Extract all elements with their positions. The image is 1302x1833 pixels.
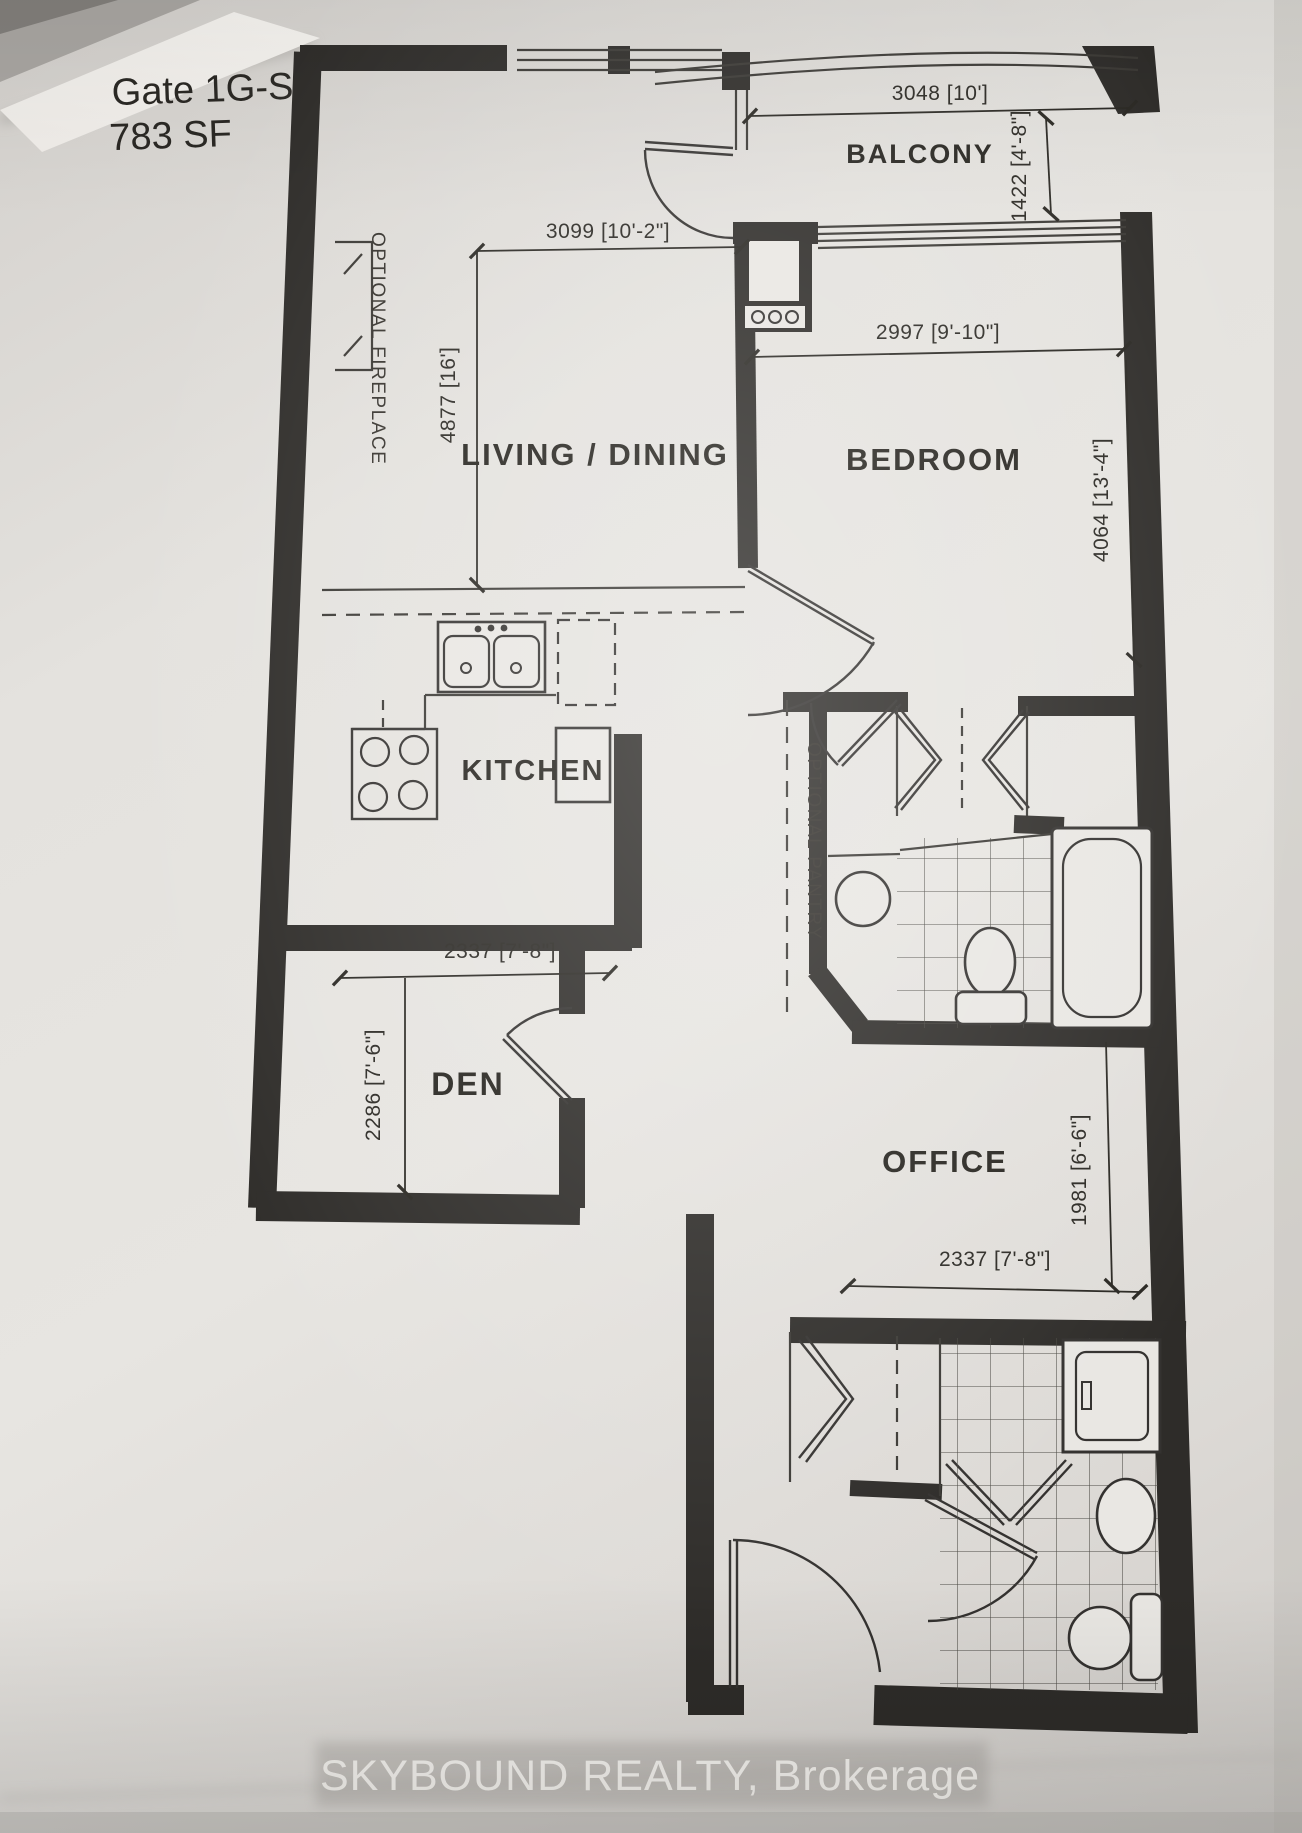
kitchen-sink <box>438 622 545 692</box>
floorplan-photo: 3048 [10'] 1422 [4'-8"] 3099 [10'-2"] 48… <box>0 0 1302 1833</box>
optional-fireplace-niche <box>335 242 372 370</box>
optional-fireplace-label: OPTIONAL FIREPLACE <box>367 232 388 465</box>
bathroom1 <box>828 828 1152 1028</box>
office-depth-dim: 1981 [6'-6"] <box>1068 1114 1091 1226</box>
den-label: DEN <box>431 1066 505 1102</box>
bathroom2-toilet-bowl <box>1069 1607 1131 1669</box>
den-width-dim: 2337 [7'-8"] <box>444 940 556 963</box>
living-dining-label: LIVING / DINING <box>461 437 729 472</box>
bathroom2-sink <box>1097 1479 1155 1553</box>
bathroom1-sink <box>836 872 890 926</box>
living-width-dim: 3099 [10'-2"] <box>546 220 670 243</box>
brokerage-name: SKYBOUND REALTY, Brokerage <box>320 1752 980 1800</box>
office-label: OFFICE <box>882 1144 1008 1179</box>
bathroom1-tub <box>1052 828 1152 1028</box>
bathroom2-toilet-tank <box>1131 1594 1162 1680</box>
bathroom1-toilet-bowl <box>965 928 1015 996</box>
floorplan-drawing: 3048 [10'] 1422 [4'-8"] 3099 [10'-2"] 48… <box>0 0 1302 1833</box>
bathroom2 <box>940 1338 1162 1690</box>
den-depth-dim: 2286 [7'-6"] <box>362 1029 385 1141</box>
den-door <box>503 1008 572 1104</box>
balcony-label: BALCONY <box>846 139 994 169</box>
bathroom1-toilet-tank <box>956 992 1026 1024</box>
bedroom-label: BEDROOM <box>846 442 1022 477</box>
interior-walls <box>266 90 1186 1496</box>
balcony-depth-dim: 1422 [4'-8"] <box>1008 110 1031 222</box>
plan-title-line2: 783 SF <box>109 113 233 159</box>
plan-title: Gate 1G-S 783 SF <box>107 66 296 159</box>
bedroom-closet-bifold-doors <box>895 710 1029 810</box>
plan-title-line1: Gate 1G-S <box>111 66 294 114</box>
bedroom-utility-closet <box>736 228 812 332</box>
balcony-width-dim: 3048 [10'] <box>892 82 989 105</box>
entry-door <box>730 1540 880 1688</box>
bedroom-depth-dim: 4064 [13'-4"] <box>1090 438 1113 562</box>
bedroom-width-dim: 2997 [9'-10"] <box>876 321 1000 344</box>
living-depth-dim: 4877 [16'] <box>437 347 460 444</box>
optional-pantry-label: OPTIONAL PANTRY <box>803 742 824 940</box>
brokerage-watermark: SKYBOUND REALTY, Brokerage <box>316 1742 988 1806</box>
bedroom-window <box>818 220 1126 248</box>
kitchen-label: KITCHEN <box>462 755 605 787</box>
office-width-dim: 2337 [7'-8"] <box>939 1248 1051 1271</box>
foyer-closet-bifold-door <box>799 1336 897 1472</box>
